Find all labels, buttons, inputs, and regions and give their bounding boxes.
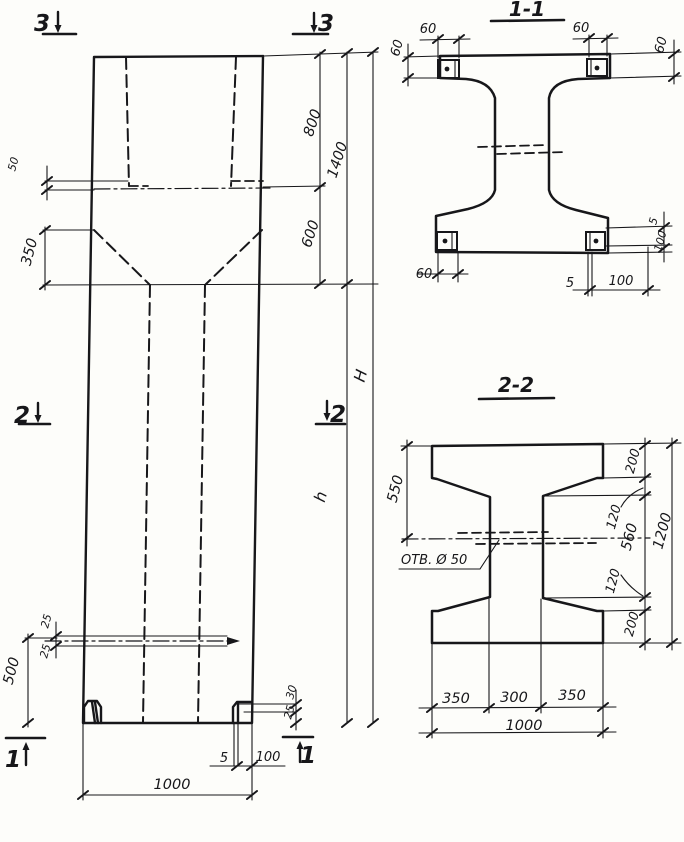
- dim-30-label: 30: [283, 684, 299, 701]
- s22-120-bottom: 120: [603, 567, 624, 595]
- slot-arrow: [227, 637, 240, 645]
- dim-50-label: 50: [5, 156, 21, 173]
- hole-label: ОТВ. Ø 50: [401, 553, 467, 568]
- section-marker-3-right: 3: [293, 11, 334, 37]
- dim-H-label: H: [350, 367, 371, 384]
- extension-lines: [25, 52, 378, 800]
- dim-5-label: 5: [220, 751, 228, 766]
- elevation-view: 50 350 800 1400 600 H h 25 25 500 30 25 …: [1, 11, 378, 800]
- section-marker-1-left: 1: [5, 738, 45, 773]
- leader-120-top: [621, 488, 643, 507]
- s22-560: 560: [619, 522, 642, 553]
- s22-350-right: 350: [558, 688, 586, 704]
- s11-5-bottom: 5: [566, 276, 574, 291]
- dim-h-label: h: [310, 489, 331, 504]
- section-1-1-title: 1-1: [509, 0, 545, 21]
- s11-60-bottomleft: 60: [416, 267, 433, 282]
- s11-60-topleft-h: 60: [388, 38, 407, 58]
- section-1-1-view: 1-1 60 60 60 60 60 5: [388, 0, 681, 296]
- section-marker-3-left: 3: [34, 11, 76, 37]
- s11-5-right: 5: [646, 216, 660, 226]
- s22-550: 550: [385, 474, 408, 505]
- section-marker-2-right: 2: [316, 401, 346, 428]
- dim-800-label: 800: [301, 107, 325, 138]
- s22-1000: 1000: [506, 718, 543, 734]
- section-1-1-outline: [436, 54, 610, 253]
- slot-lines: [45, 181, 270, 646]
- dim-100-label: 100: [256, 750, 281, 765]
- dim-1000-label: 1000: [154, 777, 191, 793]
- s22-120-top: 120: [604, 503, 625, 531]
- elevation-dimension-labels: 50 350 800 1400 600 H h 25 25 500 30 25 …: [1, 107, 372, 793]
- s11-100-right: 100: [651, 229, 669, 253]
- dim-foot25-label: 25: [281, 704, 297, 721]
- left-foot: [84, 701, 101, 723]
- section-marker-2-left: 2: [14, 403, 50, 429]
- dim-25b-label: 25: [37, 643, 53, 660]
- technical-drawing: 50 350 800 1400 600 H h 25 25 500 30 25 …: [0, 0, 684, 842]
- s22-200-top: 200: [623, 447, 644, 475]
- section-marker-1-right: 1: [283, 737, 316, 769]
- hidden-web-lines: [94, 57, 263, 722]
- s11-100-bottom: 100: [609, 274, 634, 289]
- drawing-sheet: 50 350 800 1400 600 H h 25 25 500 30 25 …: [0, 0, 684, 842]
- marker-1-left-label: 1: [5, 747, 21, 773]
- dim-25a-label: 25: [38, 613, 54, 630]
- dim-600-label: 600: [299, 218, 323, 249]
- s11-60-topleft-w: 60: [420, 22, 437, 37]
- section-2-2-title: 2-2: [498, 373, 534, 397]
- s22-350-left: 350: [442, 691, 470, 707]
- section-2-2-view: 2-2 ОТВ. Ø 50 550 200 120 560 120: [385, 373, 681, 738]
- column-outline: [83, 56, 263, 723]
- s22-300: 300: [500, 690, 528, 706]
- s22-200-bottom: 200: [622, 610, 643, 638]
- dim-500-label: 500: [1, 656, 24, 687]
- leader-120-bottom: [621, 575, 643, 596]
- s11-60-topright-w: 60: [573, 21, 590, 36]
- dim-350-label: 350: [19, 237, 42, 268]
